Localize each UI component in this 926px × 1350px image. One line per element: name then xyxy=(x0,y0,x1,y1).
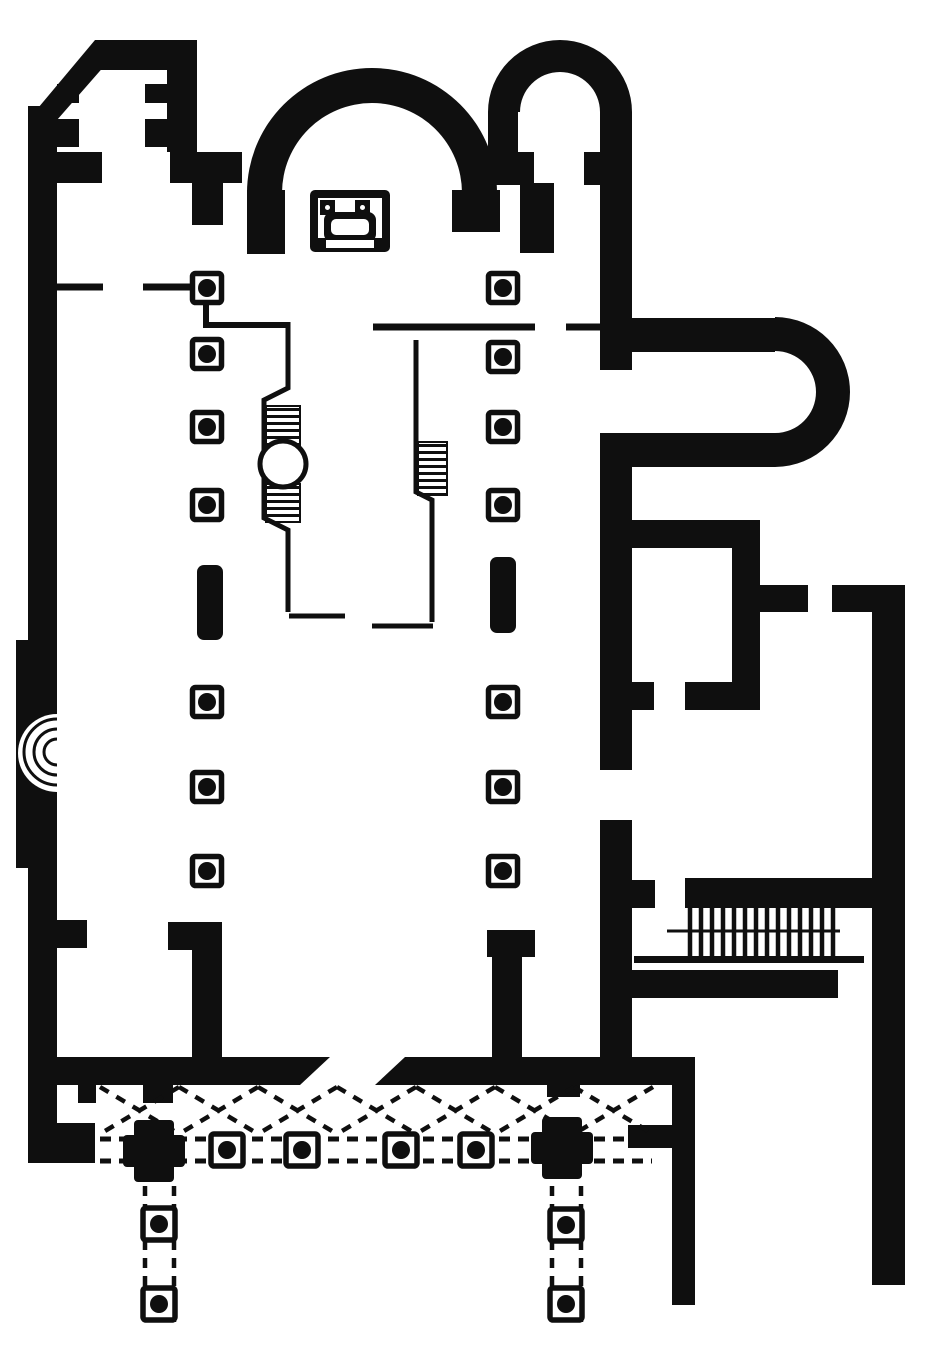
nave-solid-pier-east xyxy=(490,557,516,633)
atrium-pier-2-dot xyxy=(293,1141,311,1159)
nave-pier-e1-dot xyxy=(494,279,512,297)
side-room-west-stub xyxy=(632,682,654,710)
nave-pier-w4-dot xyxy=(198,496,216,514)
nw-crossing-pier-v xyxy=(192,152,223,225)
nave-se-return-head xyxy=(487,930,535,957)
atrium-cross-pier-west-h xyxy=(123,1135,185,1167)
atrium-pier-4-dot xyxy=(467,1141,485,1159)
nave-pier-e4-dot xyxy=(494,496,512,514)
nw-tower-pilaster-w1 xyxy=(57,84,79,103)
ne-tower-inner-void xyxy=(520,112,600,152)
nave-sw-return-wall xyxy=(192,922,222,1057)
ne-tower-west-wall xyxy=(488,112,518,185)
floor-plan-page xyxy=(0,0,926,1350)
side-room-east-stub xyxy=(760,585,808,612)
atrium-north-wall-east xyxy=(375,1057,695,1085)
atrium-north-wall-west xyxy=(38,1057,330,1085)
ne-tower-stub-w xyxy=(518,152,534,185)
nave-pier-e3-dot xyxy=(494,418,512,436)
ne-hanging-pier xyxy=(520,183,554,253)
nave-pier-e7-dot xyxy=(494,862,512,880)
altar-table-top xyxy=(331,219,369,235)
exedra-south-arm xyxy=(632,433,775,467)
atrium-pier-3-dot xyxy=(392,1141,410,1159)
altar-step-slot xyxy=(326,240,374,248)
nave-pier-w5-dot xyxy=(198,693,216,711)
nw-tower-pilaster-w2 xyxy=(57,119,79,147)
west-outer-wall xyxy=(28,106,57,1163)
apse-west-springer xyxy=(247,190,285,254)
atrium-cross-pier-east-h xyxy=(531,1132,593,1164)
nw-tower-pilaster-e2 xyxy=(145,119,167,147)
altar-post-nw-dot xyxy=(325,205,330,210)
side-room-south-wall xyxy=(685,682,760,710)
sw-corner-foot xyxy=(57,1123,95,1163)
south-pier-w2-dot xyxy=(150,1295,168,1313)
stair-south-band xyxy=(632,970,838,998)
exedra-north-arm xyxy=(632,318,775,352)
south-pier-e1-dot xyxy=(557,1216,575,1234)
floor-plan-svg xyxy=(0,0,926,1350)
nave-pier-w7-dot xyxy=(198,862,216,880)
nave-solid-pier-west xyxy=(197,565,223,640)
nw-tower-north-wall xyxy=(95,40,197,70)
atrium-east-wall xyxy=(672,1085,695,1305)
nave-pier-w1-dot xyxy=(198,279,216,297)
ne-tower-stub-e xyxy=(584,152,600,185)
apse-east-springer xyxy=(452,190,500,232)
nw-tower-east-wall xyxy=(167,66,197,152)
east-outer-wall xyxy=(872,585,905,1285)
west-wall-south-stub xyxy=(57,920,87,948)
east-wall-middle xyxy=(600,433,632,770)
atrium-pier-1-dot xyxy=(218,1141,236,1159)
nave-pier-e2-dot xyxy=(494,348,512,366)
west-door-pier xyxy=(57,152,102,183)
stair-north-band xyxy=(685,878,875,908)
nave-pier-e6-dot xyxy=(494,778,512,796)
nave-sw-return-head xyxy=(168,922,192,950)
nave-pier-w2-dot xyxy=(198,345,216,363)
nave-se-return-wall xyxy=(492,957,522,1057)
ne-tower-arch-wall xyxy=(488,40,632,112)
ambo-platform xyxy=(260,441,306,487)
nw-tower-pilaster-e1 xyxy=(145,84,167,103)
south-pier-e2-dot xyxy=(557,1295,575,1313)
south-pier-w1-dot xyxy=(150,1215,168,1233)
nave-pier-e5-dot xyxy=(494,693,512,711)
altar-post-ne-dot xyxy=(360,205,365,210)
east-wall-lower xyxy=(600,820,632,1083)
nave-pier-w3-dot xyxy=(198,418,216,436)
portico-respond-1 xyxy=(78,1085,96,1103)
nave-pier-w6-dot xyxy=(198,778,216,796)
under-stair-sill xyxy=(634,956,864,963)
east-wall-upper xyxy=(600,112,632,370)
stair-hall-west-stub xyxy=(632,880,655,908)
exedra-apse-wall xyxy=(775,317,850,467)
side-room-north-wall xyxy=(632,520,760,548)
main-apse-wall xyxy=(247,68,497,193)
